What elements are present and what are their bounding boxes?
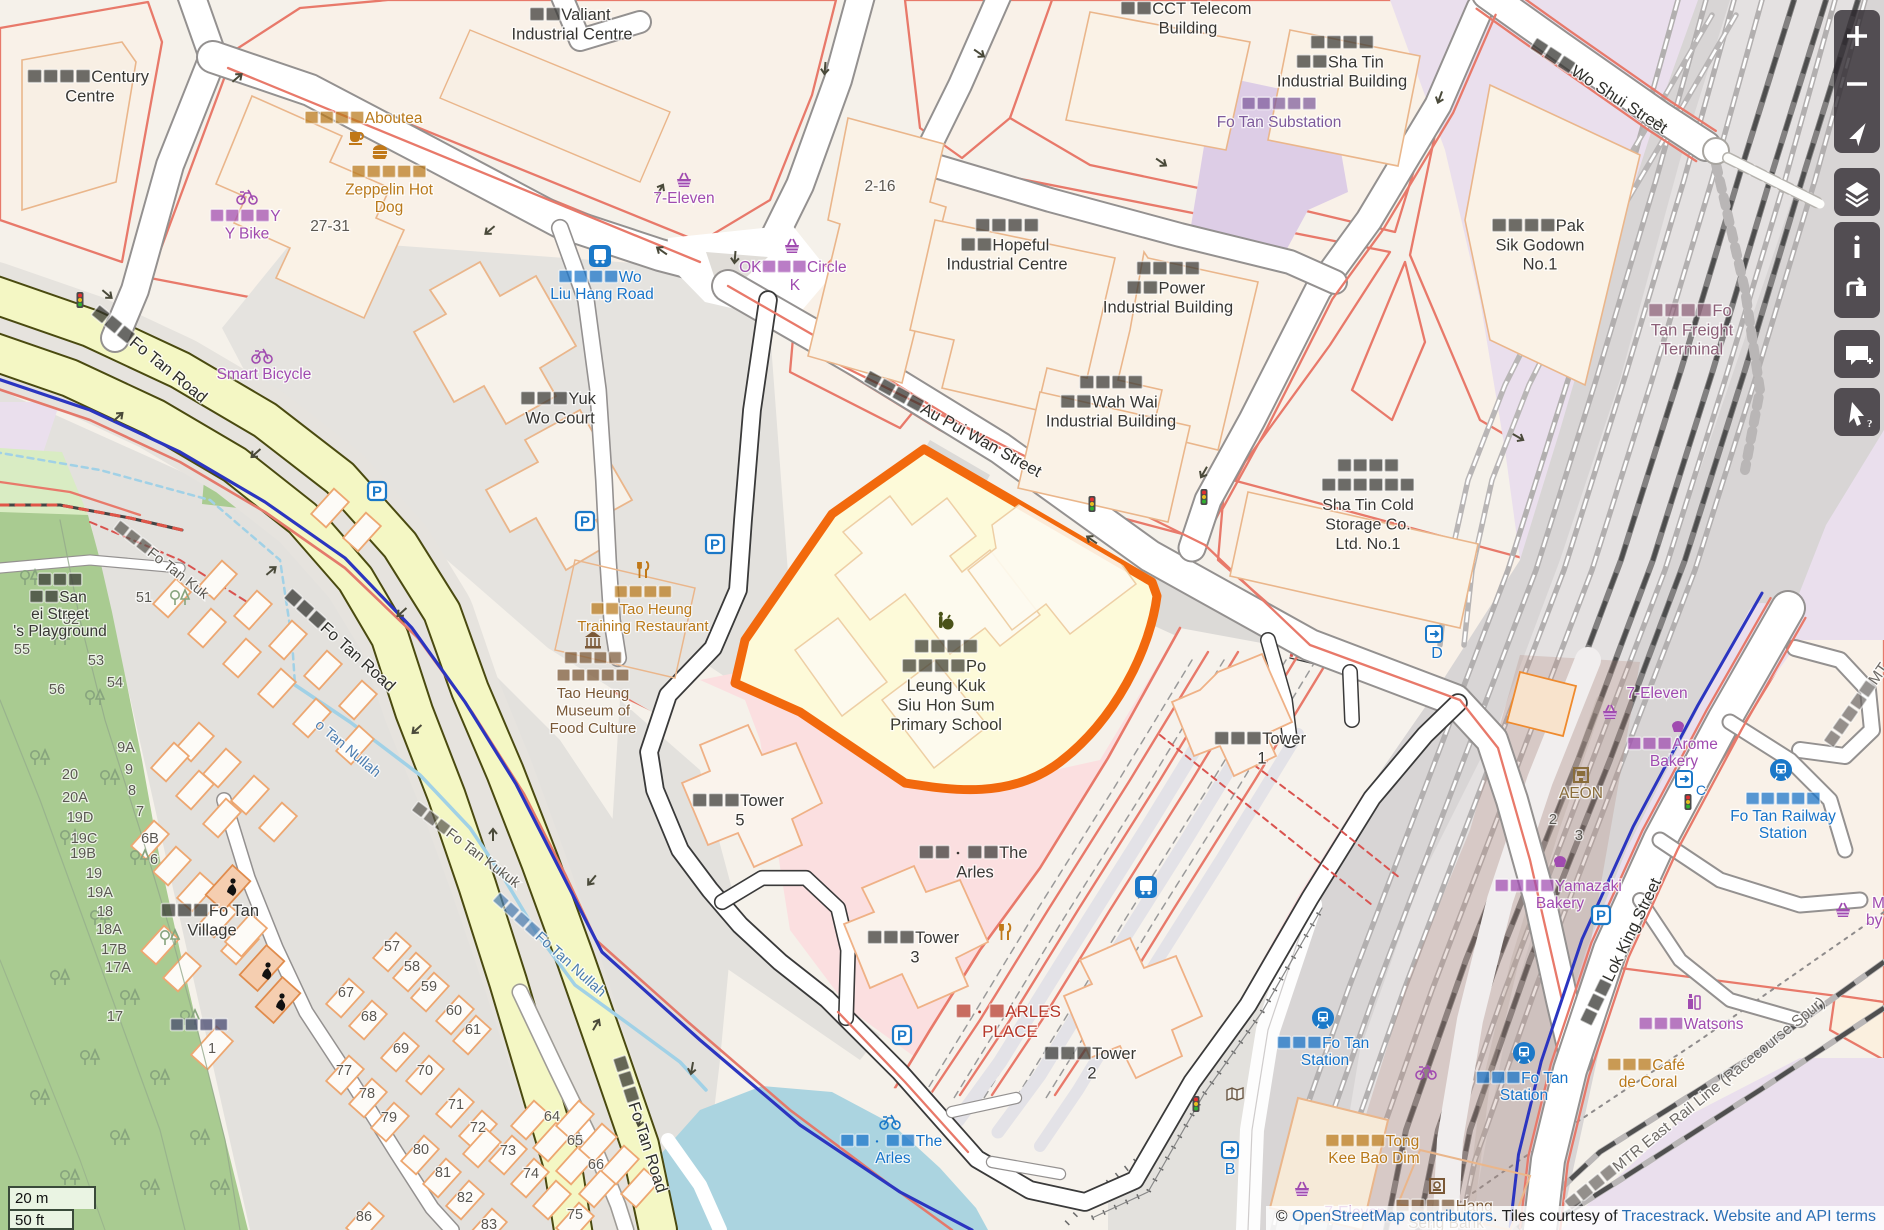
svg-text:Station: Station: [1759, 825, 1807, 842]
svg-text:The: The: [999, 844, 1027, 862]
svg-text:Tong: Tong: [1386, 1133, 1420, 1150]
svg-text:Food Culture: Food Culture: [550, 720, 637, 737]
svg-text:65: 65: [567, 1133, 583, 1149]
svg-text:20: 20: [62, 767, 78, 783]
svg-text:Kee Bao Dim: Kee Bao Dim: [1328, 1150, 1419, 1167]
svg-text:Sik Godown: Sik Godown: [1496, 236, 1585, 254]
svg-text:64: 64: [544, 1109, 560, 1125]
svg-text:51: 51: [136, 590, 152, 606]
svg-text:Station: Station: [1301, 1052, 1349, 1069]
svg-text:54: 54: [107, 675, 123, 691]
svg-text:1: 1: [208, 1041, 216, 1057]
svg-text:17: 17: [107, 1009, 123, 1025]
svg-text:19A: 19A: [87, 885, 113, 901]
svg-text:C: C: [1696, 782, 1706, 798]
svg-text:72: 72: [470, 1120, 486, 1136]
svg-text:PLACE: PLACE: [982, 1022, 1038, 1041]
svg-text:Tower: Tower: [1262, 730, 1307, 748]
svg-text:Tower: Tower: [740, 792, 785, 810]
svg-text:71: 71: [448, 1097, 464, 1113]
svg-text:Industrial Building: Industrial Building: [1046, 413, 1176, 431]
svg-text:Aboutea: Aboutea: [365, 110, 423, 127]
svg-text:3: 3: [910, 948, 919, 966]
svg-text:61: 61: [465, 1022, 481, 1038]
svg-text:Yuk: Yuk: [568, 390, 596, 408]
svg-text:83: 83: [481, 1217, 497, 1230]
svg-text:Industrial Centre: Industrial Centre: [512, 25, 633, 43]
svg-text:82: 82: [457, 1190, 473, 1206]
svg-text:Siu Hon Sum: Siu Hon Sum: [897, 697, 994, 715]
svg-text:Valiant: Valiant: [561, 6, 611, 24]
svg-text:Tan Freight: Tan Freight: [1651, 321, 1734, 339]
svg-text:18A: 18A: [96, 922, 122, 938]
svg-text:2: 2: [1087, 1064, 1096, 1082]
svg-text:Hopeful: Hopeful: [992, 236, 1049, 254]
svg-text:'s Playground: 's Playground: [13, 623, 106, 640]
svg-text:55: 55: [14, 642, 30, 658]
svg-text:Circle: Circle: [807, 259, 847, 276]
svg-text:Tao Heung: Tao Heung: [557, 685, 630, 702]
svg-text:78: 78: [359, 1086, 375, 1102]
svg-text:81: 81: [435, 1165, 451, 1181]
svg-text:Bakery: Bakery: [1650, 753, 1698, 770]
svg-text:53: 53: [88, 653, 104, 669]
svg-text:56: 56: [49, 682, 65, 698]
svg-text:Primary School: Primary School: [890, 716, 1002, 734]
svg-text:Terminal: Terminal: [1661, 341, 1723, 359]
svg-text:Liu Hang Road: Liu Hang Road: [550, 286, 653, 303]
svg-text:67: 67: [338, 985, 354, 1001]
svg-text:60: 60: [446, 1003, 462, 1019]
svg-text:Tower: Tower: [1092, 1045, 1137, 1063]
svg-text:17A: 17A: [105, 960, 131, 976]
svg-text:P: P: [1596, 908, 1606, 925]
svg-text:Dog: Dog: [375, 199, 403, 216]
svg-text:66: 66: [588, 1157, 604, 1173]
svg-text:Station: Station: [1500, 1087, 1548, 1104]
svg-text:Wah Wai: Wah Wai: [1092, 393, 1158, 411]
svg-text:Arles: Arles: [956, 863, 994, 881]
svg-text:Wo: Wo: [619, 269, 642, 286]
svg-text:Zeppelin Hot: Zeppelin Hot: [345, 182, 434, 199]
svg-text:Ltd. No.1: Ltd. No.1: [1336, 536, 1401, 553]
svg-text:Industrial Building: Industrial Building: [1103, 299, 1233, 317]
svg-text:by J: by J: [1866, 912, 1884, 929]
svg-text:5: 5: [735, 811, 744, 829]
svg-text:1: 1: [1257, 749, 1266, 767]
svg-text:Fo Tan: Fo Tan: [1322, 1035, 1369, 1052]
svg-text:77: 77: [336, 1063, 352, 1079]
svg-text:69: 69: [393, 1041, 409, 1057]
svg-text:27-31: 27-31: [310, 218, 350, 235]
svg-text:de Coral: de Coral: [1619, 1074, 1678, 1091]
svg-text:9A: 9A: [117, 740, 135, 756]
svg-text:?: ?: [1867, 418, 1873, 430]
svg-text:Yamazaki: Yamazaki: [1555, 878, 1622, 895]
svg-text:2-16: 2-16: [865, 178, 896, 195]
svg-text:Watsons: Watsons: [1684, 1016, 1744, 1033]
svg-text:74: 74: [523, 1166, 539, 1182]
svg-text:7-Eleven: 7-Eleven: [1626, 685, 1687, 702]
svg-text:No.1: No.1: [1523, 256, 1558, 274]
svg-text:Building: Building: [1159, 19, 1218, 37]
svg-text:Y: Y: [270, 208, 280, 225]
svg-text:75: 75: [567, 1207, 583, 1223]
svg-text:18: 18: [97, 904, 113, 920]
svg-text:Fo Tan Substation: Fo Tan Substation: [1217, 114, 1342, 131]
svg-text:P: P: [897, 1028, 907, 1045]
svg-text:Leung Kuk: Leung Kuk: [907, 677, 987, 695]
svg-text:58: 58: [404, 959, 420, 975]
svg-text:19D: 19D: [67, 810, 94, 826]
svg-text:7: 7: [136, 804, 144, 820]
svg-text:Tao Heung: Tao Heung: [620, 601, 693, 618]
svg-text:B: B: [1225, 1161, 1236, 1178]
svg-text:19C: 19C: [71, 831, 98, 847]
svg-text:Pak: Pak: [1556, 217, 1585, 235]
svg-text:P: P: [580, 514, 590, 531]
svg-text:Fo: Fo: [1712, 302, 1731, 320]
svg-text:Y Bike: Y Bike: [225, 226, 270, 243]
svg-text:6: 6: [150, 852, 158, 868]
svg-text:San: San: [59, 589, 87, 606]
svg-text:Centre: Centre: [65, 87, 115, 105]
svg-text:59: 59: [421, 979, 437, 995]
svg-text:19B: 19B: [70, 846, 96, 862]
svg-text:Museum of: Museum of: [556, 703, 631, 720]
svg-text:68: 68: [361, 1009, 377, 1025]
svg-text:2: 2: [1549, 811, 1557, 828]
svg-text:CCT Telecom: CCT Telecom: [1152, 0, 1251, 18]
svg-text:Training Restaurant: Training Restaurant: [577, 618, 709, 635]
svg-text:79: 79: [381, 1110, 397, 1126]
svg-text:The: The: [916, 1133, 943, 1150]
svg-text:AEON: AEON: [1559, 785, 1603, 802]
svg-text:Industrial Building: Industrial Building: [1277, 73, 1407, 91]
svg-text:Sha Tin: Sha Tin: [1328, 53, 1384, 71]
svg-text:Café: Café: [1652, 1057, 1685, 1074]
svg-text:80: 80: [413, 1142, 429, 1158]
svg-text:D: D: [1431, 645, 1443, 662]
svg-text:Century: Century: [91, 68, 150, 86]
svg-text:Fo Tan Railway: Fo Tan Railway: [1730, 808, 1836, 825]
svg-text:8: 8: [128, 783, 136, 799]
svg-text:Village: Village: [187, 921, 236, 939]
svg-text:9: 9: [125, 762, 133, 778]
svg-text:Tower: Tower: [915, 929, 960, 947]
svg-text:86: 86: [356, 1209, 372, 1225]
svg-text:Fo Tan: Fo Tan: [209, 902, 259, 920]
svg-text:17B: 17B: [101, 942, 127, 958]
svg-text:73: 73: [500, 1143, 516, 1159]
svg-text:K: K: [790, 277, 801, 294]
svg-text:Storage Co.: Storage Co.: [1325, 517, 1410, 534]
svg-text:Arome: Arome: [1672, 736, 1718, 753]
svg-text:57: 57: [384, 939, 400, 955]
svg-text:Arles: Arles: [875, 1150, 911, 1167]
svg-text:19: 19: [86, 866, 102, 882]
svg-text:Wo Court: Wo Court: [525, 409, 595, 427]
svg-text:P: P: [372, 484, 382, 501]
svg-text:20A: 20A: [62, 790, 88, 806]
svg-text:Power: Power: [1159, 279, 1206, 297]
svg-text:Smart Bicycle: Smart Bicycle: [217, 366, 312, 383]
svg-text:6B: 6B: [141, 831, 159, 847]
svg-text:P: P: [710, 537, 720, 554]
svg-text:Industrial Centre: Industrial Centre: [947, 256, 1068, 274]
svg-text:Sha Tin Cold: Sha Tin Cold: [1322, 497, 1414, 514]
svg-text:Fo Tan: Fo Tan: [1521, 1070, 1568, 1087]
svg-text:70: 70: [417, 1063, 433, 1079]
svg-text:OK: OK: [739, 259, 762, 276]
svg-text:Po: Po: [966, 658, 986, 676]
svg-text:7-Eleven: 7-Eleven: [653, 190, 714, 207]
svg-text:3: 3: [1575, 827, 1583, 844]
svg-text:Mar: Mar: [1872, 895, 1884, 912]
svg-text:ei Street: ei Street: [31, 606, 89, 623]
svg-text:Bakery: Bakery: [1536, 895, 1584, 912]
svg-text:ARLES: ARLES: [1005, 1002, 1061, 1021]
